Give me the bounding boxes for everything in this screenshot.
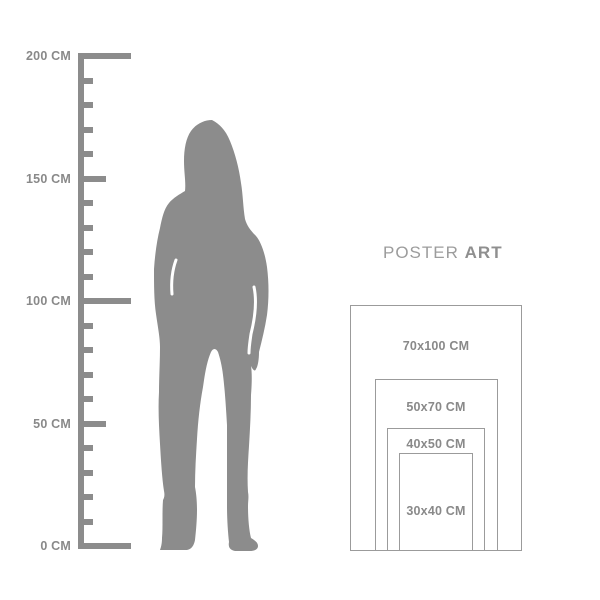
poster-title-bold: ART — [465, 243, 503, 262]
poster-art-title: POSTER ART — [383, 243, 503, 263]
size-rect-30x40 — [399, 453, 473, 551]
size-label-40x50: 40x50 CM — [406, 437, 465, 451]
size-label-30x40: 30x40 CM — [406, 504, 465, 518]
size-label-70x100: 70x100 CM — [403, 339, 469, 353]
poster-title-regular: POSTER — [383, 243, 459, 262]
poster-size-guide-diagram: 200 CM150 CM100 CM50 CM0 CM POSTER ART 7… — [0, 0, 600, 600]
size-label-50x70: 50x70 CM — [406, 400, 465, 414]
